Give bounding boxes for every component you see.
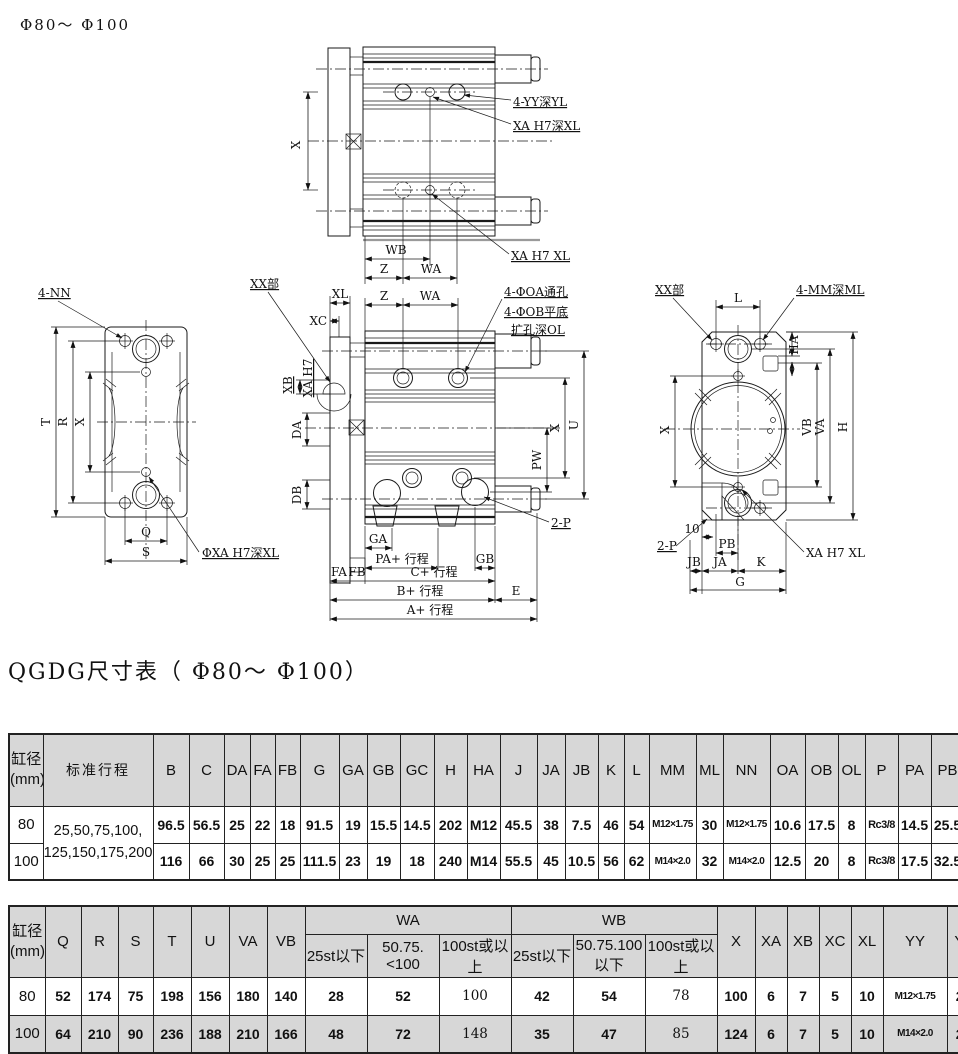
t1-cell: 25 [275,843,300,880]
t2-cell: 85 [645,1015,717,1053]
t1-col-header: P [865,734,898,806]
t1-cell: M14×2.0 [723,843,770,880]
t2-cell: 180 [229,977,267,1015]
xx-detail-hatch [317,383,351,411]
t1-cell: Rc3/8 [865,843,898,880]
t1-cell: 96.5 [153,806,189,843]
t2-cell: 42 [511,977,573,1015]
callout-4-yy: 4-YY深YL [513,95,567,109]
dim-x-label: X [548,423,562,432]
dim-xa-h7-label: XA H7 [301,359,315,398]
dim-da-label: DA [290,421,304,440]
dim-z-label: Z [380,262,388,276]
t2-cell: 188 [191,1015,229,1053]
section-mark [349,420,364,435]
t2-cell: 124 [717,1015,755,1053]
t2-cell: 5 [819,1015,851,1053]
t1-col-header: DA [224,734,250,806]
piston-rods [495,334,540,512]
t2-wb-group-header: WB [511,906,717,934]
dim-k-label: K [757,555,767,569]
cylinder-body [363,47,495,236]
t1-col-header: NN [723,734,770,806]
t2-cell: 174 [81,977,118,1015]
t1-cell: 56 [598,843,624,880]
t2-cell: 47 [573,1015,645,1053]
t1-cell: 240 [434,843,467,880]
t2-cell: 10 [851,977,883,1015]
t1-cell: 56.5 [189,806,224,843]
t2-cell: 64 [45,1015,81,1053]
dim-e-label: E [512,584,521,598]
t2-row-100: 100 64 210 90 236 188 210 166 48 72 148 … [9,1015,958,1053]
t1-stroke-cell: 25,50,75,100,125,150,175,200 [43,806,153,880]
t2-wb-sub-header: 25st以下 [511,934,573,977]
t1-cell: 17.5 [898,843,931,880]
t2-wa-sub-header: 100st或以上 [439,934,511,977]
t1-cell: 25 [250,843,275,880]
t1-cell: 55.5 [500,843,537,880]
top-view-drawing: X WB Z WA 4-YY深YL XA H7深XL XA H7 XL [289,47,580,284]
t1-cell: 20 [805,843,838,880]
t2-cell: 10 [851,1015,883,1053]
dim-q-label: Q [141,525,151,539]
t1-cell: 14.5 [898,806,931,843]
t1-bore-header: 缸径(mm) [9,734,43,806]
t2-col-header: XB [787,906,819,977]
t2-col-header: T [153,906,191,977]
t1-cell: 17.5 [805,806,838,843]
dim-xc-label: XC [309,314,327,328]
dim-s-label: S [142,545,150,559]
t2-cell: 48 [305,1015,367,1053]
t2-wa-group-header: WA [305,906,511,934]
dim-a-label: A+ 行程 [406,602,454,617]
t2-col-header: U [191,906,229,977]
dim-x-label: X [73,417,87,426]
t2-col-header: XC [819,906,851,977]
t2-wa-sub-header: 50.75.<100 [367,934,439,977]
t2-cell: 7 [787,1015,819,1053]
t1-cell: 202 [434,806,467,843]
t2-col-header: S [118,906,153,977]
callout-xx-detail: XX部 [250,276,279,291]
t1-cell: 32 [696,843,723,880]
dim-t-label: T [39,418,53,426]
t2-bore-header: 缸径(mm) [9,906,45,977]
body-rail-lines [363,54,495,230]
t2-col-header: YY [883,906,947,977]
t1-col-header: B [153,734,189,806]
t1-col-header: GB [367,734,400,806]
callout-xa-h7: XA H7 XL [806,546,865,560]
dim-fa-label: FA [331,565,347,579]
t1-col-header: G [300,734,339,806]
t1-cell: M12×1.75 [723,806,770,843]
dim-pa-label: PA+ 行程 [375,551,429,566]
t2-cell: 6 [755,977,787,1015]
t1-cell: M12×1.75 [649,806,696,843]
t1-cell: 8 [838,806,865,843]
left-view-drawing: T R X Q S 4-NN ΦXA H7深XL [38,286,279,565]
t1-col-header: ML [696,734,723,806]
t2-cell: 28 [305,977,367,1015]
t1-col-header: OL [838,734,865,806]
end-plate [330,337,350,583]
t2-cell: 72 [367,1015,439,1053]
t2-col-header: YL [947,906,958,977]
t1-cell: 25 [224,806,250,843]
t2-cell: 156 [191,977,229,1015]
dim-xb-label: XB [281,376,295,394]
bottom-holes [725,480,769,517]
t1-cell: 15.5 [367,806,400,843]
t2-header-row-groups: 缸径(mm) Q R S T U VA VB WA WB X XA XB XC … [9,906,958,934]
table-title: QGDG尺寸表（ Φ80～ Φ100） [8,654,369,686]
callout-4-ob: 4-ΦOB平底 [504,304,568,319]
body-rail-lines [365,338,495,517]
t2-cell: 7 [787,977,819,1015]
callout-4-mm: 4-MM深ML [796,283,865,297]
t1-col-header: K [598,734,624,806]
dim-wa-label: WA [421,262,442,276]
t1-bore-cell: 100 [9,843,43,880]
t1-cell: 18 [275,806,300,843]
cylinder-body [365,331,495,524]
t2-cell: 100 [717,977,755,1015]
t1-cell: 7.5 [565,806,598,843]
dim-jb-label: JB [685,555,701,569]
t1-col-header: PB [931,734,958,806]
t2-cell: 236 [153,1015,191,1053]
t1-col-header: L [624,734,649,806]
t1-col-header: GA [339,734,367,806]
t2-cell: 90 [118,1015,153,1053]
t2-bore-cell: 80 [9,977,45,1015]
t1-cell: M12 [467,806,500,843]
callout-2-p: 2-P [657,539,677,553]
ports [374,369,489,507]
t1-col-header: JA [537,734,565,806]
t1-cell: 62 [624,843,649,880]
dim-c-label: C+ 行程 [410,564,457,579]
callout-4-oa: 4-ΦOA通孔 [504,285,568,299]
t1-row-80: 80 25,50,75,100,125,150,175,200 96.5 56.… [9,806,958,843]
t1-col-header: J [500,734,537,806]
t1-cell: M14 [467,843,500,880]
t1-cell: Rc3/8 [865,806,898,843]
dim-xl-label: XL [332,287,349,301]
dim-va-label: VA [813,418,827,436]
dim-g-label: G [735,575,745,589]
t2-cell: 5 [819,977,851,1015]
t2-cell: 148 [439,1015,511,1053]
t1-col-header: FB [275,734,300,806]
dim-ga-label: GA [369,532,388,546]
t1-cell: 46 [598,806,624,843]
t1-col-header: FA [250,734,275,806]
dim-wb-label: WB [385,243,406,257]
front-view-drawing: XL XC Z WA XB XA H7 DA DB PW X U [250,276,589,622]
callout-xx-detail: XX部 [655,282,684,297]
dim-ha-label: HA [787,335,801,354]
t2-cell: 198 [153,977,191,1015]
t2-cell: M12×1.75 [883,977,947,1015]
t2-col-header: VB [267,906,305,977]
t1-cell: 45 [537,843,565,880]
t1-bore-cell: 80 [9,806,43,843]
t1-cell: 23 [339,843,367,880]
dim-r-label: R [56,417,70,427]
t2-cell: 6 [755,1015,787,1053]
dim-pb-label: PB [719,537,736,551]
qgdg-dimension-table-2: 缸径(mm) Q R S T U VA VB WA WB X XA XB XC … [8,905,958,1054]
t2-col-header: VA [229,906,267,977]
dim-10-label: 10 [684,522,699,536]
dim-l-label: L [734,291,742,305]
dim-x-label: X [658,425,672,434]
t2-cell: 52 [367,977,439,1015]
t2-bore-cell: 100 [9,1015,45,1053]
t1-col-header: JB [565,734,598,806]
t1-col-header: H [434,734,467,806]
qgdg-dimension-table-1: 缸径(mm) 标准行程 B C DA FA FB G GA GB GC H HA… [8,733,958,881]
t1-cell: 45.5 [500,806,537,843]
t1-cell: 30 [224,843,250,880]
callout-xa-h7-deep: XA H7深XL [513,119,580,133]
t1-col-header: OA [770,734,805,806]
dim-gb-label: GB [476,552,495,566]
dim-wa-label: WA [420,289,441,303]
dim-x-label: X [289,140,303,149]
t2-cell: 210 [81,1015,118,1053]
t2-cell: 78 [645,977,717,1015]
callout-xa-h7: XA H7 XL [511,249,570,263]
t1-cell: 32.5 [931,843,958,880]
t1-col-header: OB [805,734,838,806]
callout-2-p: 2-P [551,516,571,530]
t1-cell: 18 [400,843,434,880]
dim-u-label: U [567,420,581,430]
callout-4-nn: 4-NN [38,286,71,300]
t2-cell: 52 [45,977,81,1015]
t1-header-row: 缸径(mm) 标准行程 B C DA FA FB G GA GB GC H HA… [9,734,958,806]
t1-cell: 30 [696,806,723,843]
t2-cell: 24 [947,977,958,1015]
t1-cell: 10.5 [565,843,598,880]
dim-h-label: H [836,422,850,432]
t2-cell: 75 [118,977,153,1015]
t2-cell: 35 [511,1015,573,1053]
t1-col-header: GC [400,734,434,806]
dim-vb-label: VB [800,418,814,437]
dim-z-label: Z [380,289,388,303]
t1-cell: 19 [339,806,367,843]
t1-cell: 66 [189,843,224,880]
t1-cell: 14.5 [400,806,434,843]
t2-col-header: X [717,906,755,977]
t1-col-header: MM [649,734,696,806]
t1-cell: 54 [624,806,649,843]
t2-col-header: Q [45,906,81,977]
t2-cell: 210 [229,1015,267,1053]
t2-cell: M14×2.0 [883,1015,947,1053]
t2-col-header: XL [851,906,883,977]
t2-wb-sub-header: 50.75.100以下 [573,934,645,977]
t1-cell: 19 [367,843,400,880]
callout-ol: 扩孔深OL [511,323,565,337]
t2-col-header: R [81,906,118,977]
t1-stroke-header: 标准行程 [43,734,153,806]
t2-cell: 28 [947,1015,958,1053]
piston-rods [495,55,540,225]
t1-cell: 38 [537,806,565,843]
t1-col-header: PA [898,734,931,806]
t1-cell: 22 [250,806,275,843]
t2-cell: 140 [267,977,305,1015]
dim-db-label: DB [290,486,304,505]
t1-cell: 25.5 [931,806,958,843]
callout-xa-h7-deep: ΦXA H7深XL [202,546,279,560]
t2-cell: 166 [267,1015,305,1053]
technical-drawings: X WB Z WA 4-YY深YL XA H7深XL XA H7 XL [0,0,958,645]
t2-wb-sub-header: 100st或以上 [645,934,717,977]
t1-cell: M14×2.0 [649,843,696,880]
t2-cell: 54 [573,977,645,1015]
t2-wa-sub-header: 25st以下 [305,934,367,977]
dim-pw-label: PW [530,449,544,470]
dim-b-label: B+ 行程 [397,583,444,598]
t1-cell: 8 [838,843,865,880]
t1-cell: 10.6 [770,806,805,843]
t2-col-header: XA [755,906,787,977]
right-view-drawing: L HA X VB VA H 10 PB JB JA K G XX部 [655,282,865,594]
t1-cell: 12.5 [770,843,805,880]
section-mark [346,134,361,149]
port-section-hatch [702,483,746,520]
dim-ja-label: JA [711,555,727,569]
dim-fb-label: FB [348,565,365,579]
end-plate [328,48,350,236]
t1-col-header: HA [467,734,500,806]
t2-cell: 100 [439,977,511,1015]
t1-col-header: C [189,734,224,806]
t2-row-80: 80 52 174 75 198 156 180 140 28 52 100 4… [9,977,958,1015]
t1-cell: 111.5 [300,843,339,880]
t1-cell: 91.5 [300,806,339,843]
t1-cell: 116 [153,843,189,880]
